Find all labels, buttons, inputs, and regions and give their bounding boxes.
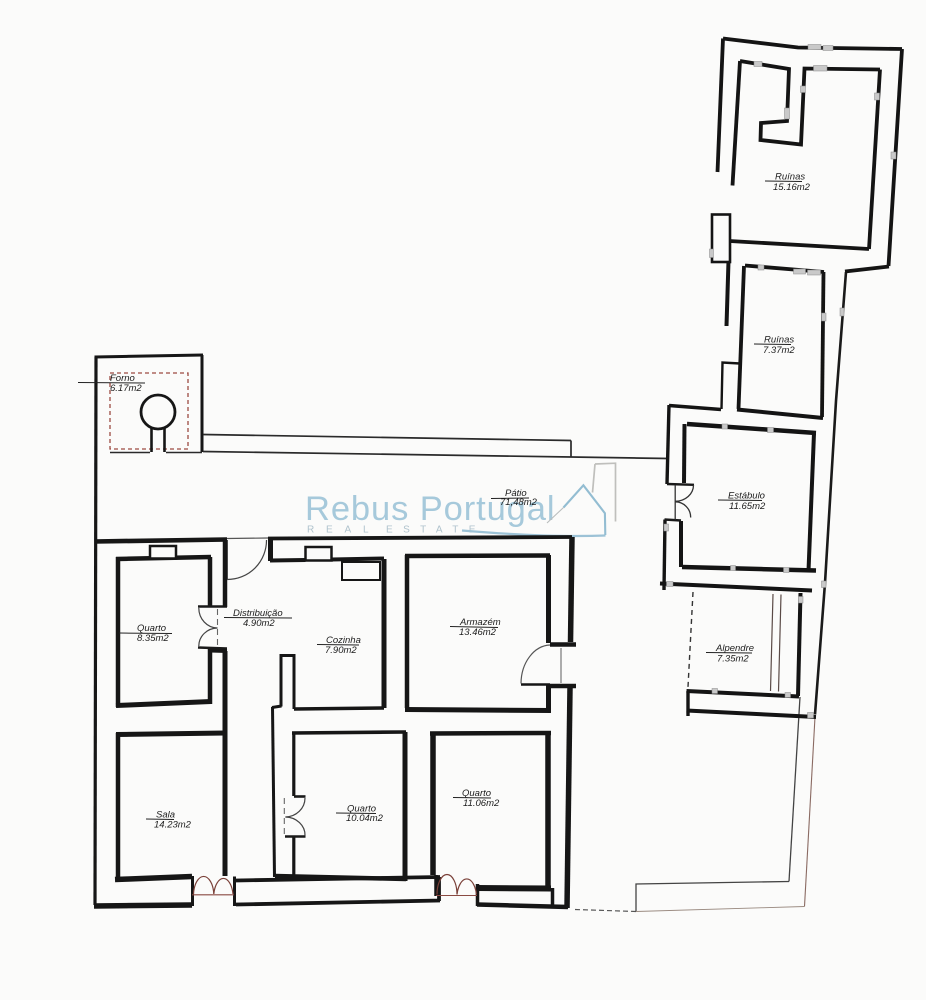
svg-text:11.65m2: 11.65m2 — [729, 501, 766, 512]
svg-text:Alpendre: Alpendre — [715, 643, 754, 654]
svg-text:7.90m2: 7.90m2 — [325, 645, 357, 656]
svg-text:7.35m2: 7.35m2 — [717, 654, 749, 665]
svg-text:13.46m2: 13.46m2 — [459, 627, 497, 638]
svg-text:10.04m2: 10.04m2 — [346, 813, 384, 824]
svg-text:15.16m2: 15.16m2 — [773, 182, 811, 193]
svg-text:4.90m2: 4.90m2 — [243, 618, 275, 629]
svg-text:Ruínas: Ruínas — [764, 335, 794, 346]
svg-text:7.37m2: 7.37m2 — [763, 345, 795, 356]
svg-text:ESTATE: ESTATE — [386, 525, 486, 536]
svg-text:REAL: REAL — [307, 525, 380, 536]
svg-text:Estábulo: Estábulo — [728, 491, 765, 502]
svg-text:6.17m2: 6.17m2 — [110, 383, 142, 394]
svg-text:8.35m2: 8.35m2 — [137, 633, 169, 644]
svg-text:71,48m2: 71,48m2 — [500, 497, 538, 508]
svg-text:14.23m2: 14.23m2 — [154, 820, 192, 831]
svg-text:Ruínas: Ruínas — [775, 172, 805, 183]
svg-text:11.06m2: 11.06m2 — [463, 798, 500, 809]
